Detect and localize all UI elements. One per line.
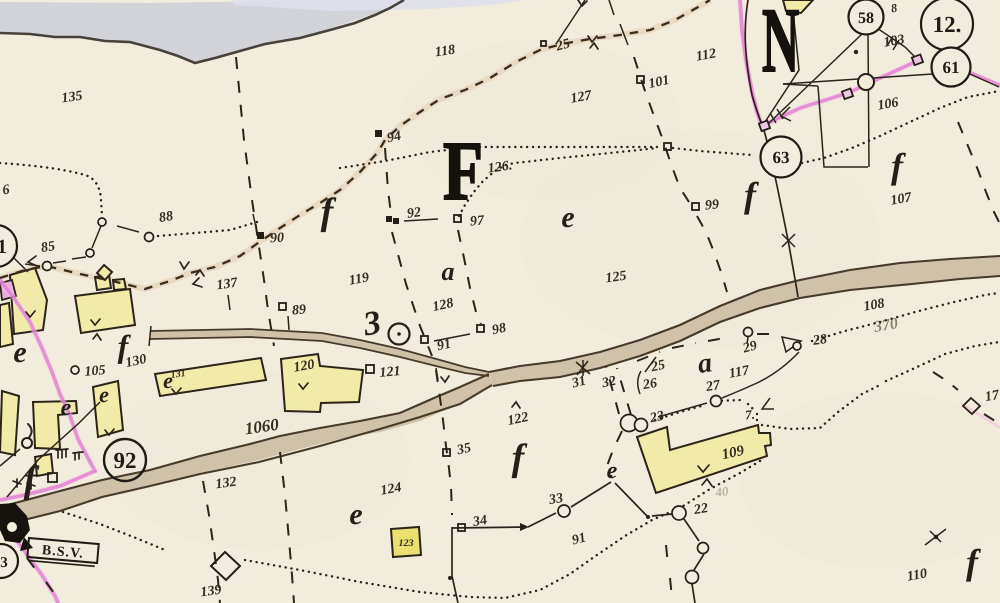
svg-text:22: 22 (692, 501, 709, 518)
svg-text:e: e (349, 498, 362, 531)
svg-text:58: 58 (858, 10, 874, 27)
svg-text:97: 97 (469, 213, 485, 229)
svg-text:89: 89 (291, 302, 306, 318)
svg-text:N: N (762, 0, 799, 91)
svg-text:25: 25 (649, 358, 667, 376)
svg-text:17: 17 (984, 388, 1000, 405)
svg-text:e: e (561, 201, 574, 234)
svg-text:90: 90 (270, 231, 285, 247)
svg-text:125: 125 (605, 269, 628, 287)
svg-text:118: 118 (434, 43, 456, 61)
svg-text:35: 35 (455, 441, 473, 459)
svg-text:131: 131 (170, 368, 186, 381)
svg-text:61: 61 (943, 58, 960, 77)
svg-text:105: 105 (84, 363, 106, 380)
svg-text:e: e (99, 382, 109, 407)
svg-text:132: 132 (215, 475, 238, 493)
svg-text:a: a (442, 257, 455, 286)
svg-text:e: e (607, 458, 618, 484)
svg-text:135: 135 (61, 89, 84, 107)
svg-text:F: F (443, 125, 483, 218)
svg-text:123: 123 (399, 538, 414, 549)
svg-text:121: 121 (379, 364, 401, 381)
svg-text:137: 137 (216, 275, 240, 293)
svg-text:85: 85 (40, 239, 56, 256)
svg-text:92: 92 (406, 205, 422, 222)
svg-text:1: 1 (0, 236, 7, 258)
svg-text:88: 88 (158, 209, 174, 226)
svg-text:92: 92 (114, 448, 137, 473)
svg-text:23: 23 (648, 409, 666, 427)
svg-text:34: 34 (471, 513, 488, 530)
svg-text:99: 99 (704, 197, 719, 213)
svg-text:e: e (13, 336, 26, 369)
svg-text:7.: 7. (744, 407, 755, 423)
svg-text:3: 3 (0, 555, 8, 571)
svg-text:139: 139 (200, 583, 223, 601)
svg-text:40: 40 (713, 483, 729, 500)
svg-text:33: 33 (547, 491, 564, 508)
svg-text:26: 26 (641, 376, 658, 393)
svg-text:e: e (61, 395, 72, 421)
svg-text:12.: 12. (933, 12, 962, 37)
svg-text:28: 28 (811, 332, 828, 349)
svg-text:32: 32 (600, 374, 618, 392)
svg-text:63: 63 (773, 148, 790, 167)
